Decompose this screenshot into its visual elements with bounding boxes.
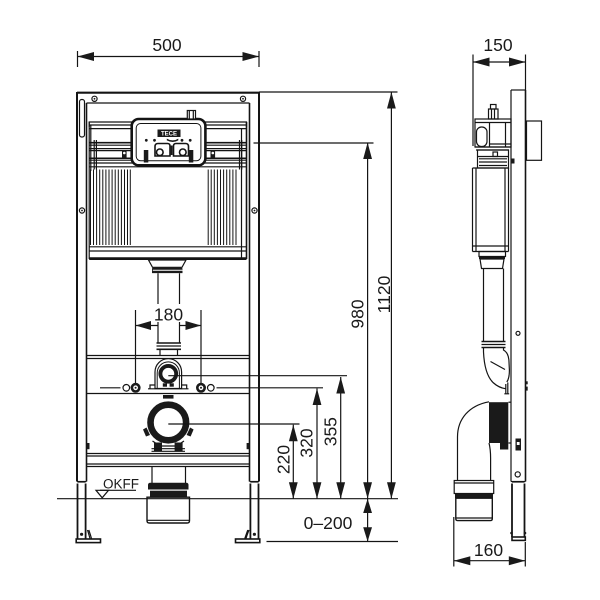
svg-text:980: 980 — [348, 299, 368, 328]
svg-text:180: 180 — [154, 305, 183, 325]
svg-text:150: 150 — [483, 35, 512, 55]
svg-text:355: 355 — [321, 417, 341, 446]
svg-text:500: 500 — [152, 35, 181, 55]
svg-text:OKFF: OKFF — [103, 477, 139, 492]
svg-text:1120: 1120 — [374, 275, 394, 313]
svg-text:TECE: TECE — [161, 132, 177, 138]
svg-text:0–200: 0–200 — [304, 513, 353, 533]
svg-text:220: 220 — [274, 445, 294, 474]
svg-text:320: 320 — [297, 428, 317, 457]
svg-text:160: 160 — [474, 540, 503, 560]
